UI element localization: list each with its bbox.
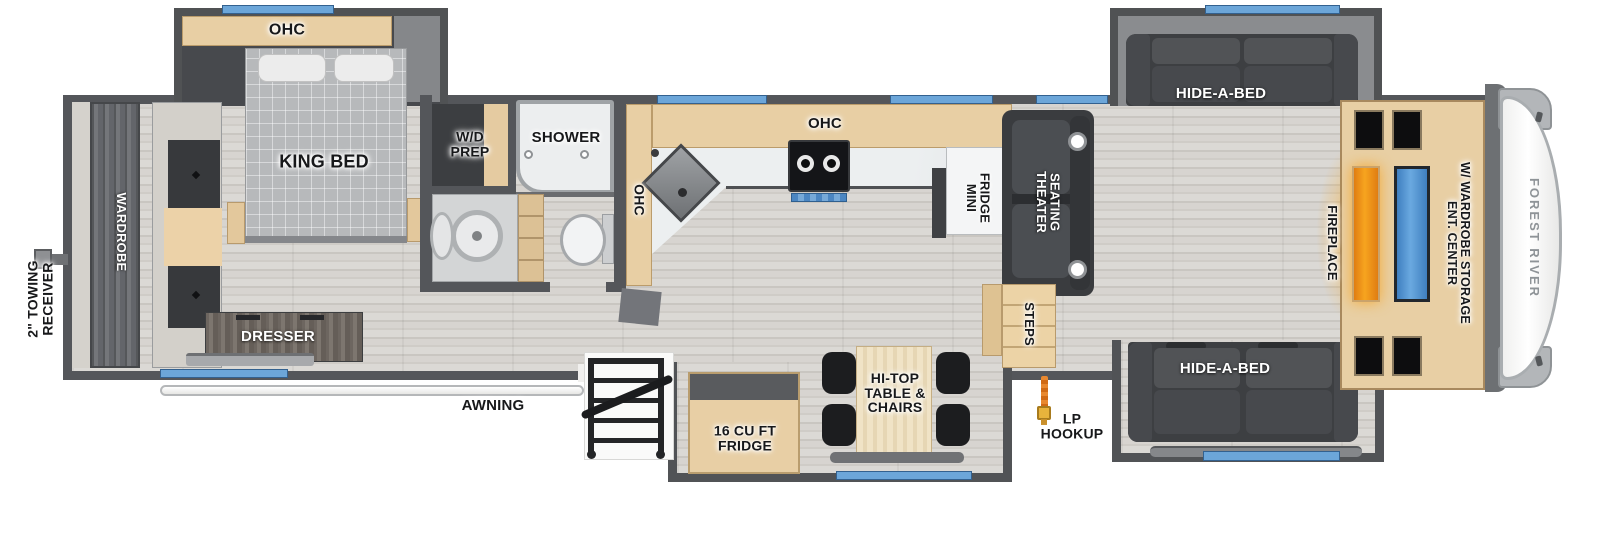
- kitchen-ohc-side-label: OHC: [632, 184, 647, 216]
- pillow: [334, 54, 394, 82]
- hitop-chair: [936, 352, 970, 394]
- window: [222, 5, 334, 14]
- bedroom-left-panel: [72, 102, 92, 368]
- tv-screen: [1394, 166, 1430, 302]
- bathroom-wall-bottom: [420, 282, 550, 292]
- bedroom-ohc-label: OHC: [269, 23, 305, 40]
- dresser-handle: [300, 315, 324, 320]
- ent-cabinet-opening: [1354, 336, 1384, 376]
- kitchen-faucet: [651, 149, 659, 157]
- vanity-sink-drain: [472, 231, 482, 241]
- king-bed-label: KING BED: [279, 153, 369, 172]
- entry-step-tread: [592, 438, 662, 443]
- window: [836, 471, 972, 480]
- wardrobe-label: WARDROBE: [114, 193, 128, 272]
- awning-label: AWNING: [462, 398, 525, 414]
- sofa-seat-cushion: [1246, 390, 1332, 434]
- bathroom-wall-divider: [432, 186, 510, 194]
- sofa-back-cushion: [1152, 38, 1240, 64]
- window: [1036, 95, 1108, 104]
- sofa-armrest: [1126, 34, 1150, 106]
- toilet-bowl: [560, 214, 606, 266]
- wd-prep-label: W/D PREP: [451, 129, 490, 158]
- bathroom-wall-left: [420, 95, 432, 292]
- hitop-table-label: HI-TOP TABLE & CHAIRS: [864, 371, 925, 415]
- shower-label: SHOWER: [532, 130, 601, 146]
- hitop-chair: [822, 352, 856, 394]
- bathroom-wall-right: [614, 95, 626, 292]
- stove-burner: [797, 155, 814, 172]
- kitchen-counter-end: [618, 288, 661, 326]
- ent-center-label: ENT. CENTER W/ WARDROBE STORAGE: [1445, 162, 1471, 324]
- mini-fridge-side: [932, 168, 946, 238]
- ent-cabinet-opening: [1392, 336, 1422, 376]
- fireplace-label: FIREPLACE: [1325, 205, 1339, 280]
- pillow: [258, 54, 326, 82]
- hide-a-bed-bottom-label: HIDE-A-BED: [1180, 361, 1270, 377]
- towing-receiver-label: 2" TOWING RECEIVER: [25, 260, 54, 337]
- shower-head: [524, 150, 533, 159]
- fireplace-insert: [1352, 166, 1380, 302]
- window: [657, 95, 767, 104]
- shower: [516, 100, 614, 194]
- bathroom-wall-divider: [508, 98, 516, 194]
- ent-cabinet-opening: [1392, 110, 1422, 150]
- entry-step-tread: [588, 358, 664, 364]
- fridge-16cuft-top: [690, 374, 798, 400]
- window: [1203, 451, 1340, 461]
- vanity-drawers: [518, 194, 544, 282]
- mini-fridge-label: MINI FRIDGE: [964, 173, 991, 223]
- stove-burner: [823, 155, 840, 172]
- hide-a-bed-top-label: HIDE-A-BED: [1176, 86, 1266, 102]
- dresser-label: DRESSER: [241, 329, 315, 345]
- brand-logo: FOREST RIVER: [1527, 178, 1541, 298]
- dresser-handle: [236, 315, 260, 320]
- shower-head: [580, 150, 589, 159]
- entry-step-tread: [592, 418, 662, 423]
- vanity-oval-basin: [430, 212, 454, 260]
- window: [1205, 5, 1340, 14]
- lp-hose-icon: [1041, 376, 1048, 408]
- cupholder: [1068, 132, 1087, 151]
- floorplan: 2" TOWING RECEIVER OHC WARDROBE KING BED…: [0, 0, 1600, 556]
- hitop-chair: [936, 404, 970, 446]
- fridge-16cuft-label: 16 CU FT FRIDGE: [714, 423, 776, 452]
- lp-hookup-label: LP HOOKUP: [1041, 411, 1104, 440]
- entry-steps-foot: [587, 450, 596, 459]
- theater-seating-label: THEATER SEATING: [1034, 171, 1061, 233]
- bedroom-cabinet-shelf: [164, 208, 222, 266]
- ent-cabinet-opening: [1354, 110, 1384, 150]
- dresser-bench: [186, 353, 314, 366]
- hitop-chair: [822, 404, 856, 446]
- kitchen-slide-bench: [830, 452, 964, 463]
- entry-steps-foot: [656, 450, 665, 459]
- window: [160, 369, 288, 378]
- window: [890, 95, 993, 104]
- stove-towel-bar: [791, 193, 847, 202]
- nightstand: [227, 202, 245, 244]
- sofa-seat-cushion: [1154, 390, 1240, 434]
- sofa-armrest: [1128, 342, 1152, 442]
- sofa-armrest: [1334, 34, 1358, 106]
- awning-rail: [160, 385, 584, 396]
- kitchen-ohc-top-label: OHC: [808, 116, 842, 132]
- steps-label: STEPS: [1022, 302, 1036, 346]
- sofa-back-cushion: [1244, 38, 1332, 64]
- cupholder: [1068, 260, 1087, 279]
- interior-steps: [982, 284, 1002, 356]
- kitchen-sink-drain: [678, 188, 687, 197]
- bed-foot-rail: [245, 236, 407, 243]
